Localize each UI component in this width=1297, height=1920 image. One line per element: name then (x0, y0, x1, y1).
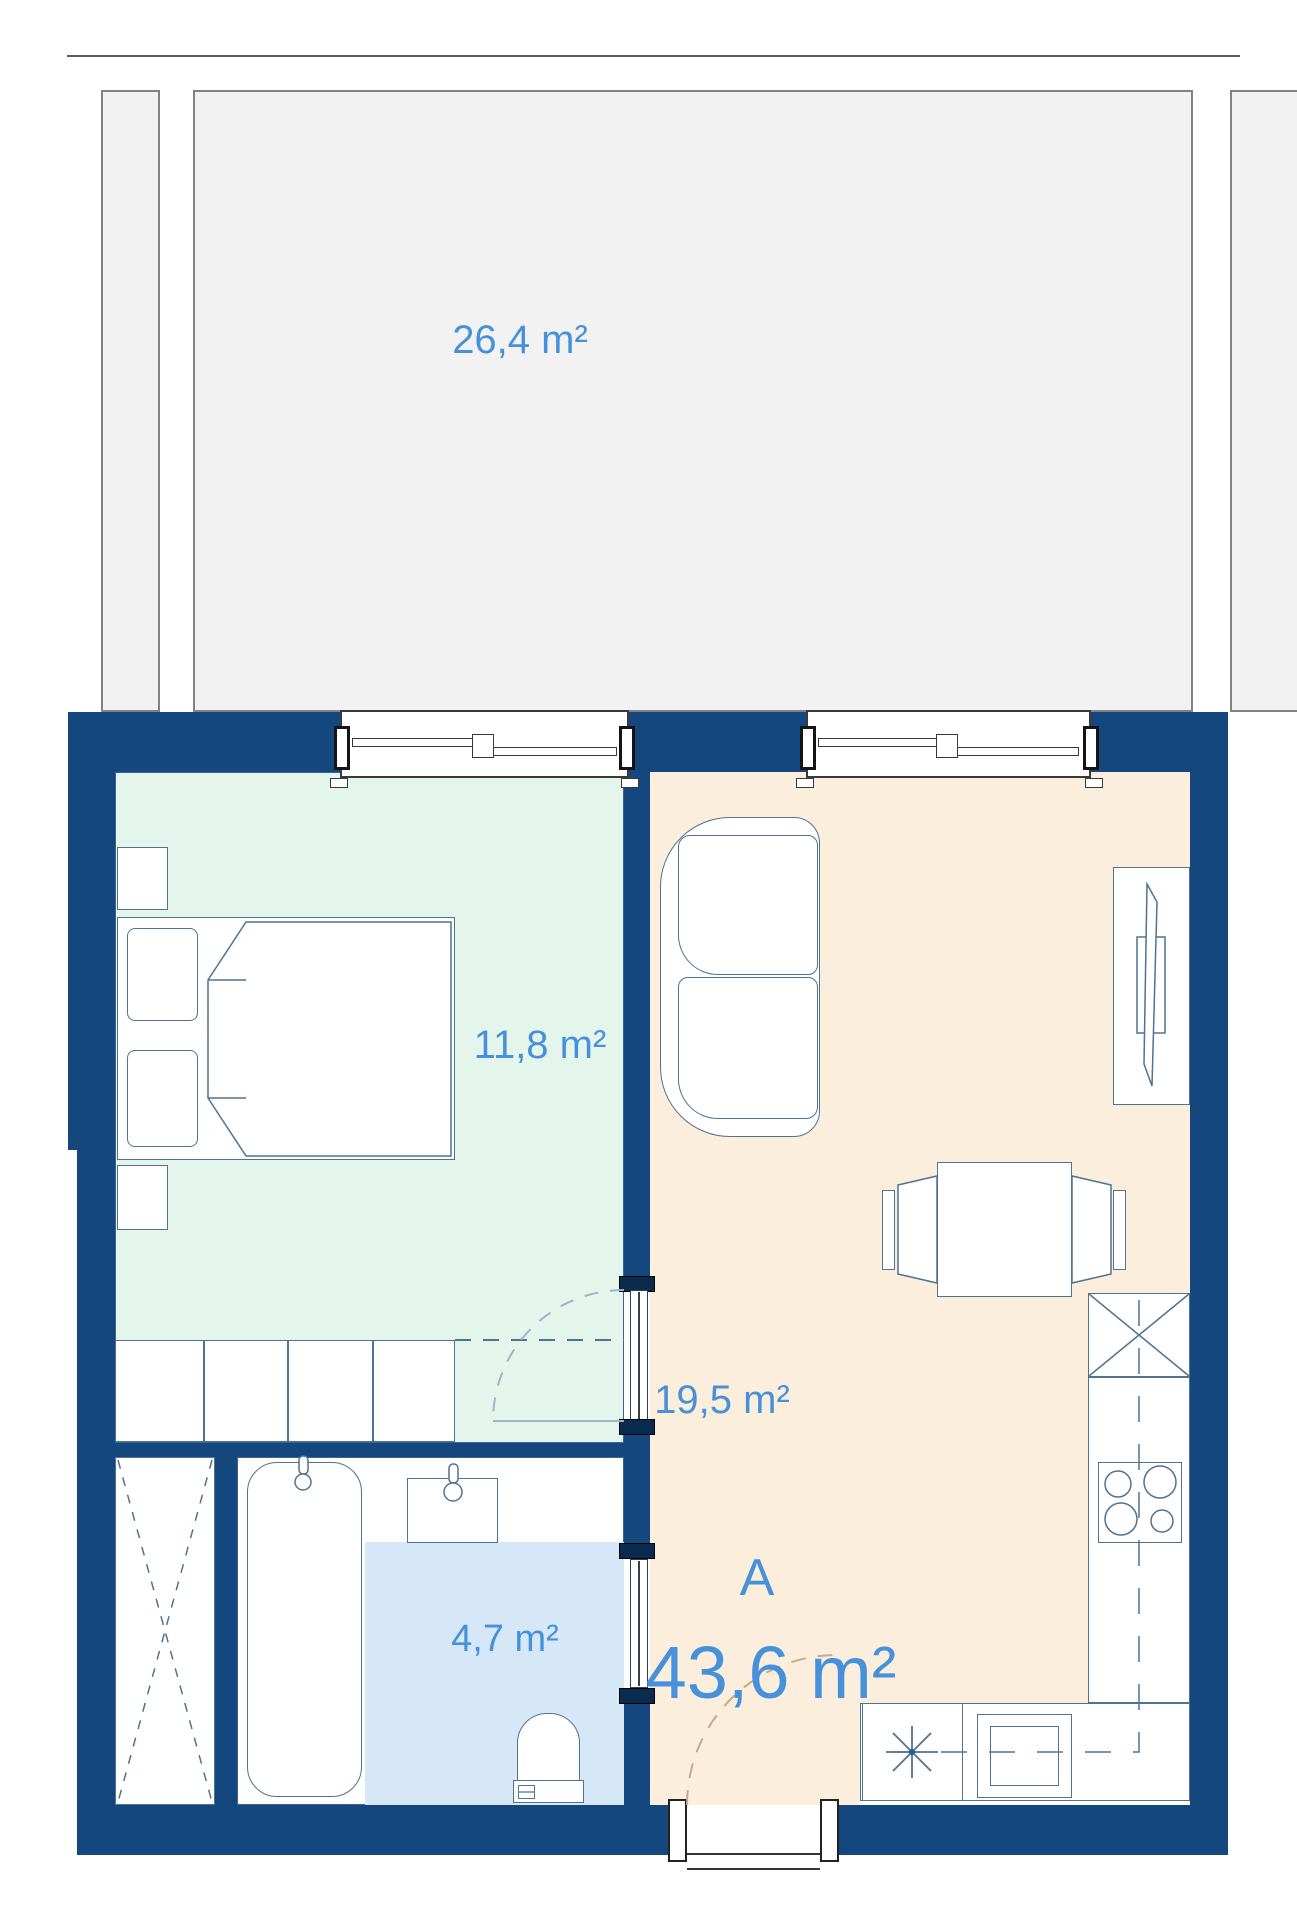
bedroom-window-sill-tick-right (621, 778, 639, 788)
shower-room-floor (115, 1457, 215, 1805)
tv-bench (1113, 867, 1190, 1105)
bedroom-window-mid-box (472, 734, 494, 758)
bathroom-sink (407, 1478, 498, 1543)
sofa-cushion-bottom (678, 977, 818, 1119)
sofa-cushion-top (678, 835, 818, 975)
wardrobe-divider-1 (203, 1340, 205, 1442)
nightstand-bottom (117, 1165, 168, 1230)
terrace-strip-right (1230, 90, 1297, 712)
dining-table (937, 1162, 1072, 1297)
bathroom-door-jamb-top (619, 1543, 655, 1559)
floor-plan: 26,4 m² 11,8 m² 19,5 m² 4,7 m² A 43,6 m² (0, 0, 1297, 1920)
living-window-sill-tick-right (1085, 778, 1103, 788)
unit-total-area-label: 43,6 m² (611, 1630, 931, 1715)
hob (1098, 1462, 1182, 1543)
wardrobe-divider-3 (372, 1340, 374, 1442)
wall-left-upper (68, 712, 115, 1150)
wardrobe-divider-2 (287, 1340, 289, 1442)
terrace-main (193, 90, 1193, 712)
toilet-flush-detail (518, 1785, 535, 1799)
living-window-jamb-right (1083, 726, 1099, 770)
nightstand-top (117, 847, 168, 910)
chair-left-backrest (882, 1190, 895, 1270)
pillow-bottom (127, 1050, 198, 1147)
bedroom-window-sash-right (479, 747, 617, 756)
bedroom-window-sill-tick-left (330, 778, 348, 788)
chair-right-backrest (1113, 1190, 1126, 1270)
wall-left-lower (77, 1150, 115, 1855)
living-window-mid-box (936, 734, 958, 758)
wall-bottom-left (77, 1805, 672, 1855)
terrace-strip-left (101, 90, 160, 712)
bedroom-window-sash-left (352, 738, 490, 747)
pillow-top (127, 928, 198, 1021)
living-window-jamb-left (800, 726, 816, 770)
living-room-area-label: 19,5 m² (582, 1378, 862, 1423)
toilet-bowl (517, 1713, 580, 1785)
bathroom-floor (365, 1542, 624, 1805)
oven-inner (990, 1726, 1059, 1786)
wall-right (1190, 712, 1228, 1855)
bathroom-area-label: 4,7 m² (385, 1618, 625, 1661)
bathtub (247, 1462, 362, 1797)
living-window-sill-tick-left (796, 778, 814, 788)
living-window-sash-right (943, 747, 1079, 756)
living-window-sash-left (818, 738, 954, 747)
wall-bedroom-south (115, 1443, 650, 1457)
entry-door-threshold (687, 1853, 820, 1870)
wall-shower-room (215, 1457, 237, 1805)
bedroom-window-jamb-right (619, 726, 635, 770)
entry-floor (650, 1703, 860, 1805)
bedroom-area-label: 11,8 m² (400, 1023, 680, 1068)
terrace-area-label: 26,4 m² (380, 318, 660, 363)
terrace-boundary-line (67, 55, 1240, 57)
unit-name-label: A (707, 1548, 807, 1608)
entry-door-jamb-right (820, 1799, 839, 1862)
wardrobe (115, 1340, 455, 1442)
wall-bottom-right (837, 1805, 1228, 1855)
entry-door-opening (686, 1805, 821, 1855)
entry-door-jamb-left (668, 1799, 687, 1862)
kitchen-corner-cabinet (1088, 1293, 1190, 1377)
bedroom-window-jamb-left (334, 726, 350, 770)
fridge (862, 1703, 963, 1801)
